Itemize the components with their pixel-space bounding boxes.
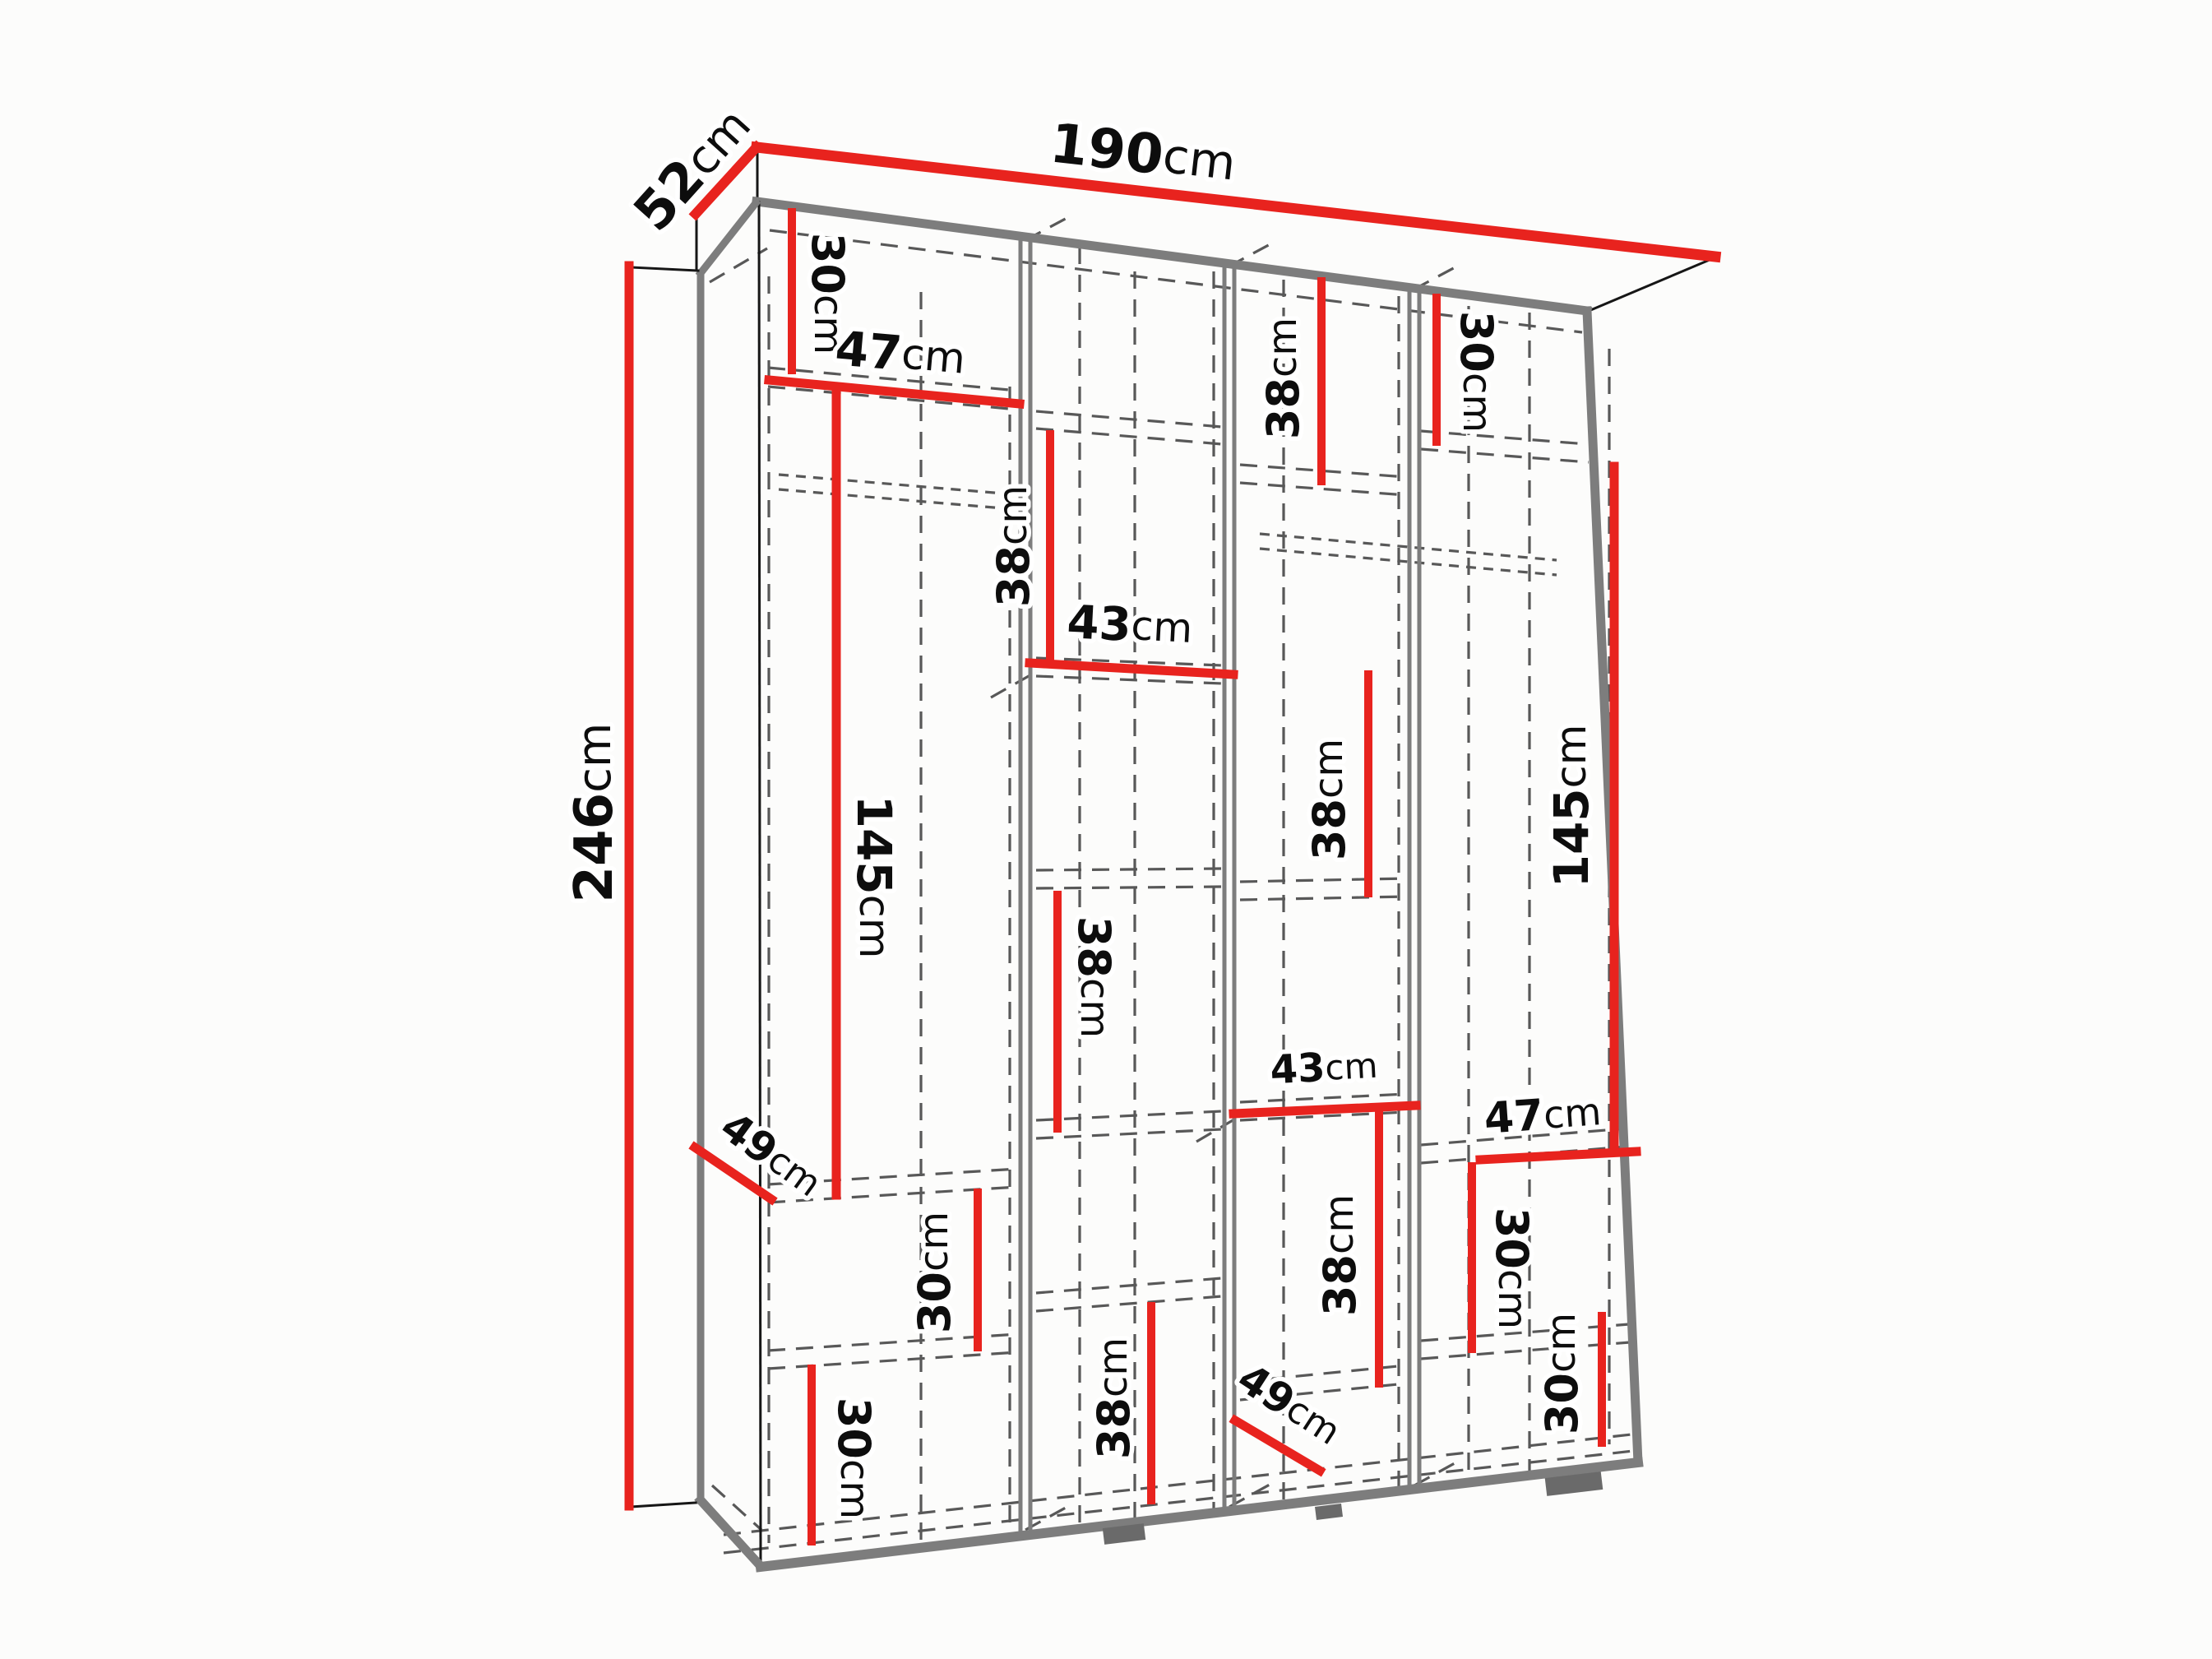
dimension-label-sec1-shelf-47cm: 47cm [833,320,968,387]
dimension-label-sec3-top-38cm: 38cm [1257,317,1309,439]
outline-segment [761,1462,1638,1567]
dimension-label-sec3-shelf-43cm: 43cm [1269,1042,1379,1094]
interior-dashed-line [1036,869,1222,870]
diagram-canvas: 52cm190cm246cm30cm47cm145cm38cm43cm38cm3… [0,0,2212,1659]
interior-dashed-line [1036,1296,1222,1311]
outline-segment [631,1503,696,1507]
outline-segment [757,202,1587,311]
outline-segment [1316,1510,1342,1513]
dimension-label-sec1-hanging-145cm: 145cm [846,795,902,959]
dimension-label-sec1-low-30cm: 30cm [829,1397,881,1519]
interior-dashed-line [1036,1278,1222,1293]
interior-dashed-line [768,1352,1018,1369]
interior-dashed-line [1036,1111,1222,1120]
dimension-label-sec1-depth-49cm: 49cm [712,1102,831,1207]
outline-segment [1589,257,1715,311]
dimension-label-sec4-mid-30cm: 30cm [1487,1207,1539,1329]
dimension-label-sec4-low-30cm: 30cm [1536,1313,1588,1434]
dimension-label-sec2-low-38cm: 38cm [1088,1337,1140,1459]
wardrobe-dimension-diagram: 52cm190cm246cm30cm47cm145cm38cm43cm38cm3… [0,0,2212,1659]
dimension-label-sec2-top-38cm: 38cm [988,485,1039,607]
outline-segment [701,1500,760,1565]
dim-line-sec1-shelf-47cm [769,380,1020,404]
interior-dashed-line [1240,1094,1406,1102]
dim-line-sec2-shelf-43cm [1030,663,1233,674]
interior-dashed-line [1036,676,1222,684]
dimension-labels: 52cm190cm246cm30cm47cm145cm38cm43cm38cm3… [564,95,1603,1519]
dimension-label-sec3-mid-38cm: 38cm [1303,739,1355,860]
interior-dashed-line [1036,429,1222,444]
outline-segment [1546,1481,1602,1487]
dimension-label-height-246cm: 246cm [564,723,625,903]
dimension-label-sec3-depth-49cm: 49cm [1229,1354,1349,1455]
dim-line-sec4-shelf-47cm [1480,1152,1636,1160]
interior-dashed-line [1240,878,1406,882]
interior-dashed-line [1036,411,1222,427]
interior-dashed-line [1036,887,1222,888]
outline-segment [701,203,756,273]
interior-dashed-line [779,489,1013,509]
outline-segment [1104,1532,1145,1536]
interior-dashed-line [1240,897,1406,900]
interior-dashed-line [1036,1129,1222,1138]
dimension-label-sec4-shelf-47cm: 47cm [1483,1087,1603,1144]
interior-dashed-line [1421,449,1589,462]
dimension-label-sec3-low-38cm: 38cm [1314,1194,1366,1316]
outline-segment [631,267,698,271]
dim-line-width-190cm [757,147,1715,257]
interior-dashed-line [1421,431,1587,444]
outline-segment [759,202,761,1566]
dimension-label-sec1-mid-30cm: 30cm [909,1212,960,1333]
dimension-label-sec4-top-30cm: 30cm [1451,311,1503,433]
dimension-label-sec4-hanging-145cm: 145cm [1543,725,1599,888]
dimension-label-sec2-shelf-43cm: 43cm [1066,595,1194,656]
dimension-label-sec2-mid-38cm: 38cm [1069,916,1121,1038]
interior-dashed-line [991,673,1034,697]
